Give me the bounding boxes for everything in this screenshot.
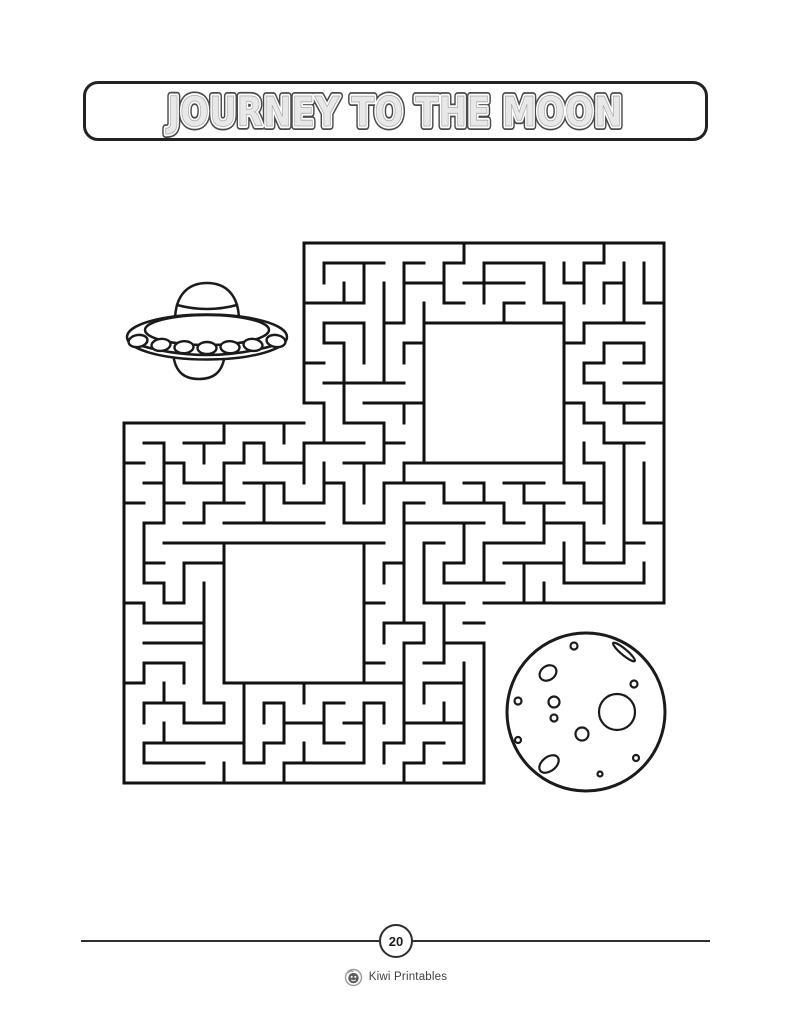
ufo-icon xyxy=(127,283,287,379)
moon-icon xyxy=(507,633,665,791)
kiwi-logo-icon xyxy=(344,968,363,987)
brand-name: Kiwi Printables xyxy=(369,971,447,983)
page-number-badge: 20 xyxy=(379,924,413,958)
page-number: 20 xyxy=(389,934,403,949)
worksheet-page: JOURNEY TO THE MOON JOURNEY TO THE MOON … xyxy=(0,0,791,1024)
puzzle-art xyxy=(0,0,791,1024)
brand-footer: Kiwi Printables xyxy=(0,965,791,989)
